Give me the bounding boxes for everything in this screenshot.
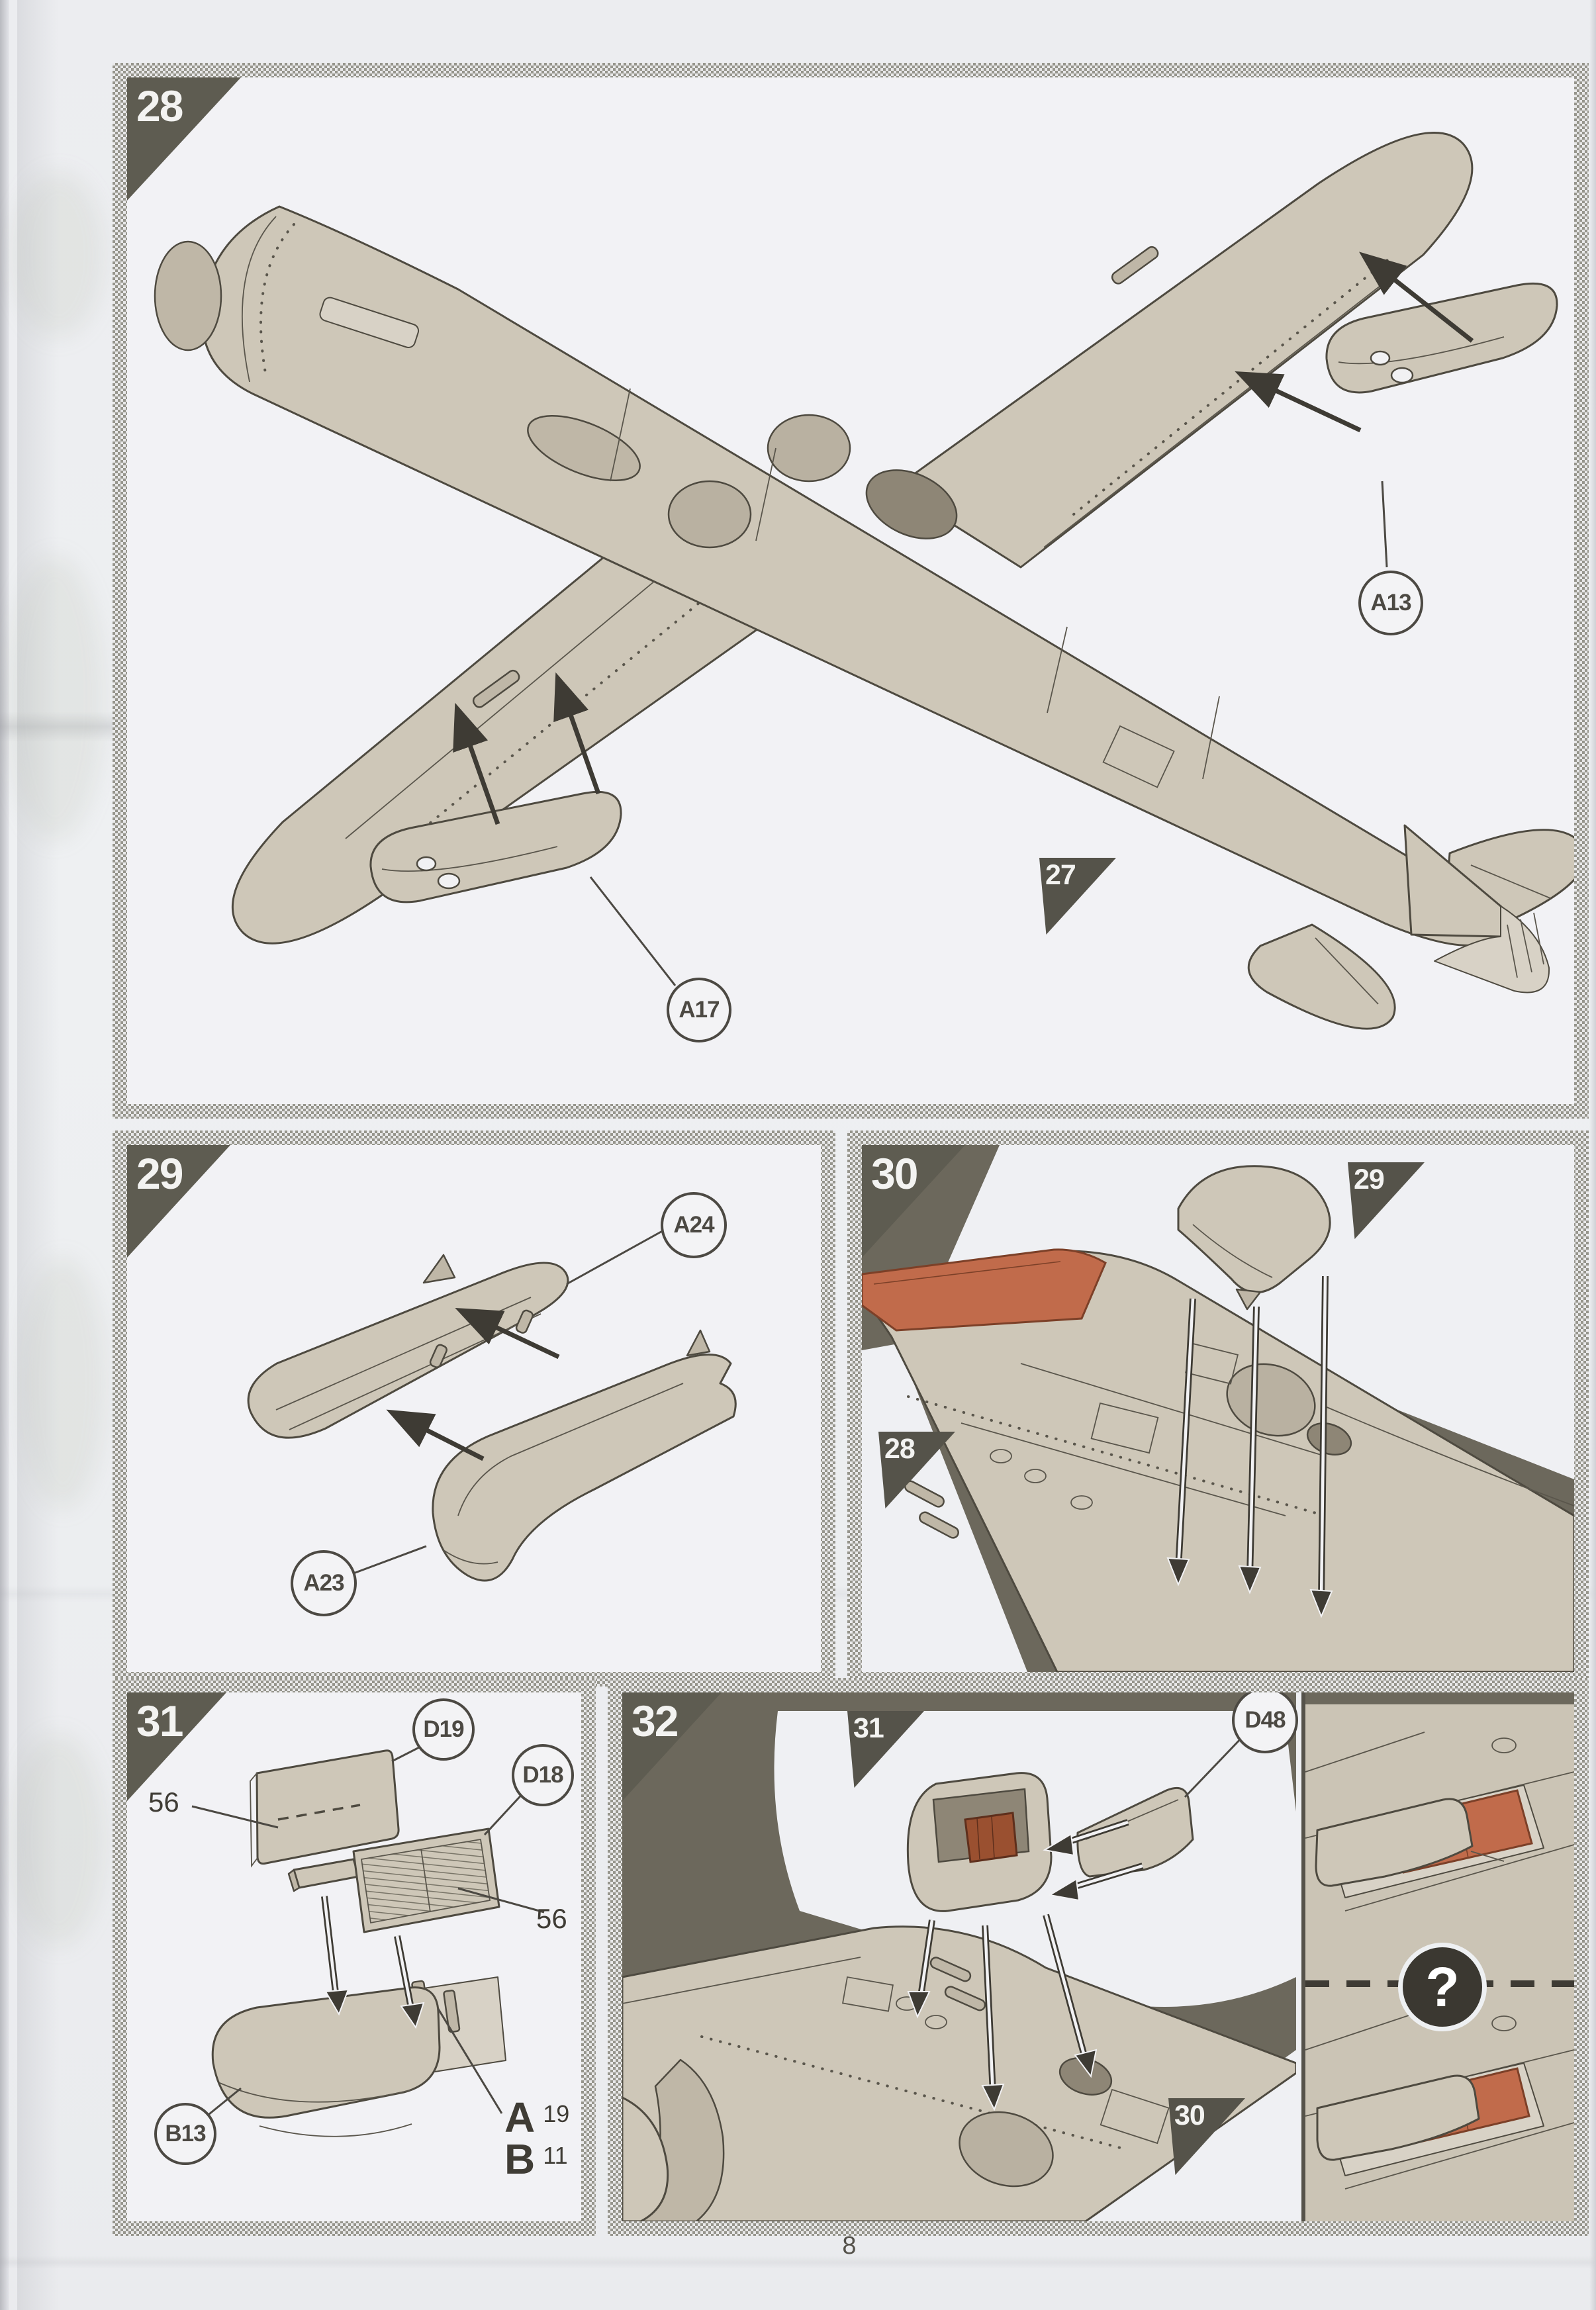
part-callout-a17: A17 (667, 978, 731, 1042)
ref-step-27-marker: 27 (1039, 858, 1116, 935)
print-bleedthrough (5, 556, 105, 841)
part-callout-a24: A24 (661, 1192, 727, 1258)
part-callout-label: B13 (165, 2121, 205, 2147)
question-mark-badge: ? (1398, 1943, 1487, 2031)
flap-position-option-subpanel: ? (1305, 1692, 1574, 2221)
ref-step-number: 29 (1354, 1166, 1384, 1194)
housing-assembly (212, 1977, 506, 2137)
variant-letter: A (504, 2098, 535, 2138)
red-walkway-area (862, 1250, 1105, 1330)
step-panel-28: 28 27 A13 A17 (113, 63, 1589, 1119)
paper-crease (17, 0, 77, 2310)
step-number: 32 (632, 1699, 677, 1743)
part-callout-d19: D19 (412, 1698, 475, 1761)
ref-step-31-marker: 31 (847, 1711, 924, 1788)
part-callout-label: D48 (1244, 1707, 1285, 1733)
decal-number-left: 56 (148, 1786, 179, 1818)
part-callout-label: A24 (673, 1212, 714, 1238)
ref-step-30-marker: 30 (1168, 2098, 1245, 2175)
paper-crease (0, 2256, 1596, 2269)
step-number-marker-28: 28 (127, 77, 241, 201)
variant-count: 11 (543, 2142, 567, 2170)
variant-quantities: A 19 B 11 (504, 2098, 569, 2180)
variant-letter: B (504, 2139, 535, 2180)
ref-step-number: 30 (1174, 2102, 1205, 2130)
step-number-marker-31: 31 (127, 1692, 226, 1801)
step-number: 31 (136, 1699, 182, 1743)
step-number: 28 (136, 84, 182, 128)
print-bleedthrough (20, 1258, 106, 1509)
ref-step-29-marker: 29 (1348, 1162, 1425, 1239)
step-panel-30: 30 29 28 (847, 1131, 1589, 1686)
step-panel-31: 31 D19 D18 B13 56 56 A 19 B 11 (113, 1678, 596, 2236)
part-callout-b13: B13 (154, 2103, 216, 2165)
print-bleedthrough (12, 1734, 105, 1946)
part-callout-a23: A23 (291, 1550, 357, 1616)
ref-step-number: 28 (884, 1435, 915, 1463)
ref-step-number: 31 (853, 1714, 884, 1743)
step-panel-32: ? 32 31 30 D48 (608, 1678, 1589, 2236)
step-panel-29: 29 A24 A23 (113, 1131, 835, 1686)
part-d18-radiator-matrix (353, 1829, 499, 1932)
part-callout-label: D19 (423, 1716, 463, 1743)
ref-step-28-marker: 28 (878, 1432, 955, 1508)
radiator-core (965, 1813, 1017, 1862)
instruction-sheet-page: 28 27 A13 A17 (0, 0, 1596, 2310)
spitfire-underside-illustration (127, 77, 1574, 1104)
step-number-marker-30: 30 (862, 1145, 965, 1258)
step-number: 29 (136, 1152, 182, 1195)
part-callout-label: A17 (679, 997, 719, 1023)
wing-underside-illustration (862, 1145, 1574, 1672)
question-mark: ? (1425, 1955, 1459, 2019)
page-number: 8 (816, 2232, 882, 2260)
variant-row-a: A 19 (504, 2098, 569, 2138)
radiator-housing-part (908, 1773, 1051, 1912)
part-callout-label: A13 (1370, 590, 1411, 616)
airframe (155, 133, 1574, 1029)
part-callout-label: A23 (303, 1570, 344, 1596)
ref-step-number: 27 (1045, 861, 1076, 890)
variant-row-b: B 11 (504, 2139, 569, 2180)
part-callout-d18: D18 (512, 1744, 574, 1806)
print-bleedthrough (12, 172, 105, 338)
step-number-marker-29: 29 (127, 1145, 230, 1258)
step-number: 30 (871, 1152, 917, 1195)
paper-edge-shadow (1589, 0, 1596, 2310)
scan-edge (0, 0, 9, 2310)
part-callout-label: D18 (522, 1762, 563, 1788)
part-callout-a13: A13 (1358, 571, 1423, 635)
sub-panel-gap (1296, 1692, 1301, 2221)
step-number-marker-32: 32 (622, 1692, 722, 1801)
decal-number-right: 56 (536, 1903, 567, 1935)
variant-count: 19 (543, 2100, 569, 2128)
